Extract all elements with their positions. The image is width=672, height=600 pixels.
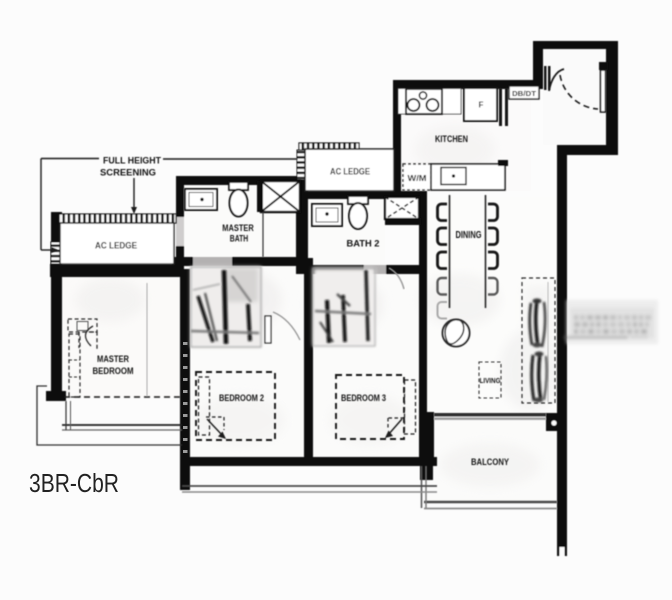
svg-text:BEDROOM 3: BEDROOM 3 — [341, 393, 386, 403]
svg-text:DINING: DINING — [456, 230, 482, 241]
svg-text:BATH 2: BATH 2 — [347, 239, 380, 250]
svg-text:DB/DT: DB/DT — [512, 91, 537, 98]
svg-text:KITCHEN: KITCHEN — [435, 134, 468, 145]
svg-text:FULL HEIGHT: FULL HEIGHT — [103, 156, 161, 167]
svg-text:AC LEDGE: AC LEDGE — [330, 167, 370, 178]
svg-text:BEDROOM 2: BEDROOM 2 — [219, 393, 264, 403]
svg-text:W/M: W/M — [408, 174, 427, 183]
svg-text:AC LEDGE: AC LEDGE — [95, 241, 137, 252]
svg-text:MASTER: MASTER — [222, 223, 254, 234]
svg-text:SCREENING: SCREENING — [100, 168, 156, 179]
svg-text:3BR-CbR: 3BR-CbR — [29, 470, 119, 498]
svg-text:BEDROOM: BEDROOM — [93, 366, 134, 376]
svg-text:MASTER: MASTER — [97, 354, 129, 364]
svg-text:F: F — [479, 101, 484, 110]
svg-text:BALCONY: BALCONY — [471, 457, 509, 467]
svg-text:LIVING: LIVING — [480, 376, 501, 385]
svg-text:BATH: BATH — [230, 234, 249, 245]
